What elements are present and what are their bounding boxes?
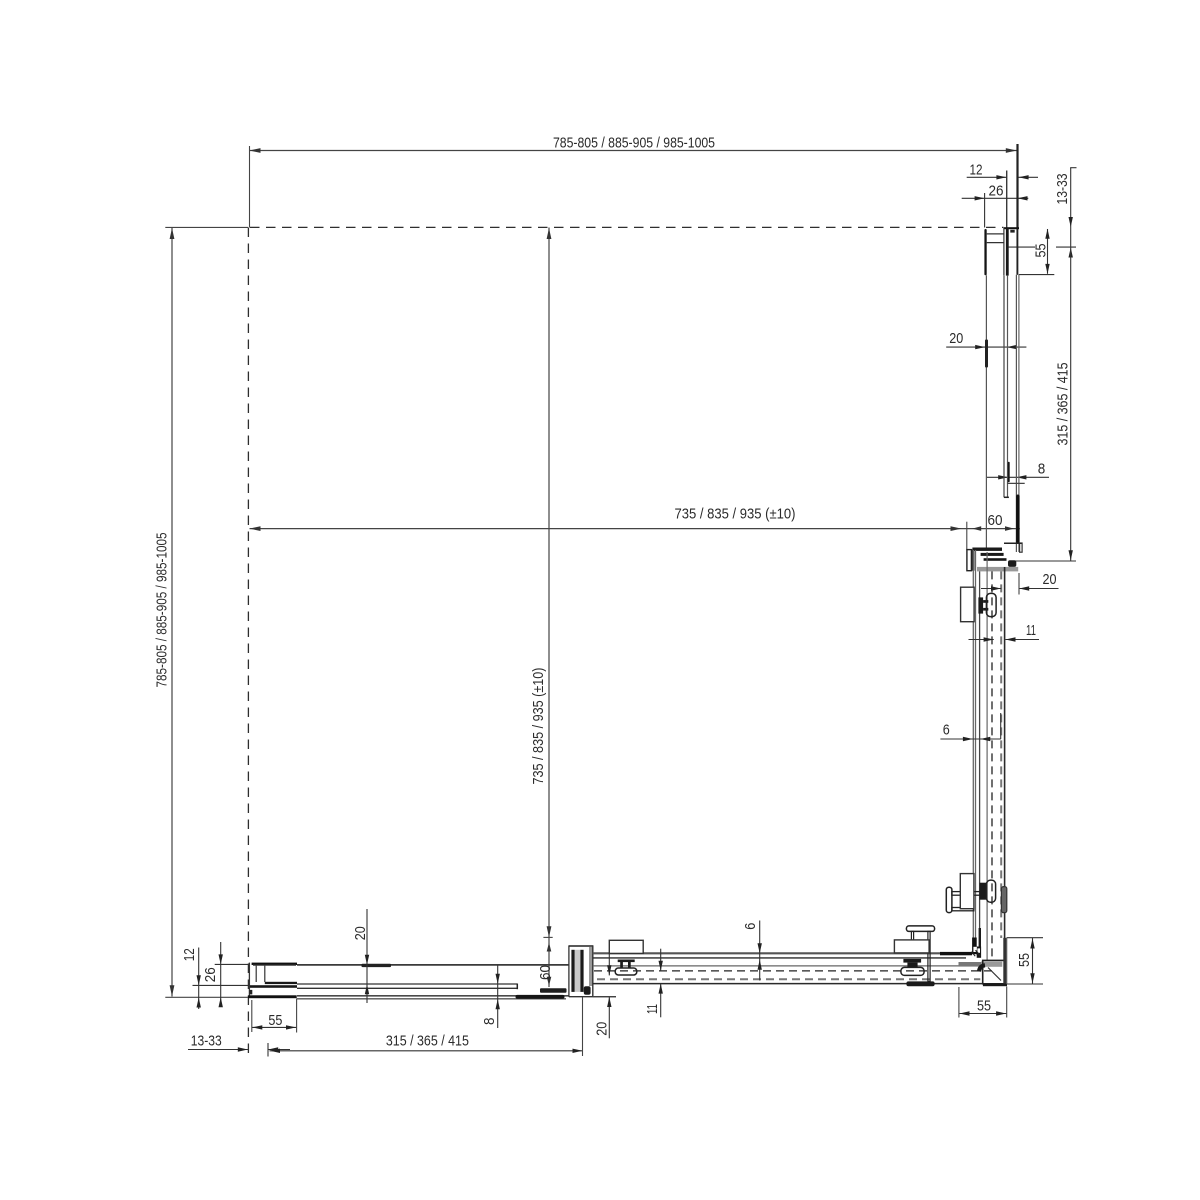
svg-text:8: 8 [481,1017,498,1024]
svg-text:315 / 365 / 415: 315 / 365 / 415 [1055,363,1072,446]
svg-text:8: 8 [1038,461,1046,478]
svg-text:11: 11 [644,1004,661,1014]
svg-text:55: 55 [1033,244,1050,258]
svg-text:55: 55 [268,1012,282,1029]
svg-text:20: 20 [1043,571,1057,588]
svg-text:13-33: 13-33 [191,1033,222,1050]
svg-text:13-33: 13-33 [1054,174,1071,205]
svg-text:6: 6 [943,722,950,739]
svg-text:20: 20 [949,330,963,347]
svg-text:315 / 365 / 415: 315 / 365 / 415 [386,1033,469,1050]
svg-text:20: 20 [593,1022,610,1036]
svg-text:26: 26 [202,967,219,982]
svg-text:12: 12 [970,162,983,179]
svg-text:55: 55 [1016,953,1033,967]
svg-text:735 / 835 / 935 (±10): 735 / 835 / 935 (±10) [675,505,796,522]
svg-text:55: 55 [977,997,991,1014]
svg-text:6: 6 [742,923,759,930]
svg-text:12: 12 [181,948,198,961]
svg-text:60: 60 [537,965,554,980]
svg-text:785-805 / 885-905 / 985-1005: 785-805 / 885-905 / 985-1005 [553,135,715,152]
svg-text:785-805 / 885-905 / 985-1005: 785-805 / 885-905 / 985-1005 [154,533,171,688]
svg-text:20: 20 [352,926,369,940]
svg-text:11: 11 [1026,622,1036,639]
svg-text:735 / 835 / 935 (±10): 735 / 835 / 935 (±10) [530,668,547,785]
svg-text:26: 26 [989,182,1004,199]
svg-text:60: 60 [988,512,1003,529]
